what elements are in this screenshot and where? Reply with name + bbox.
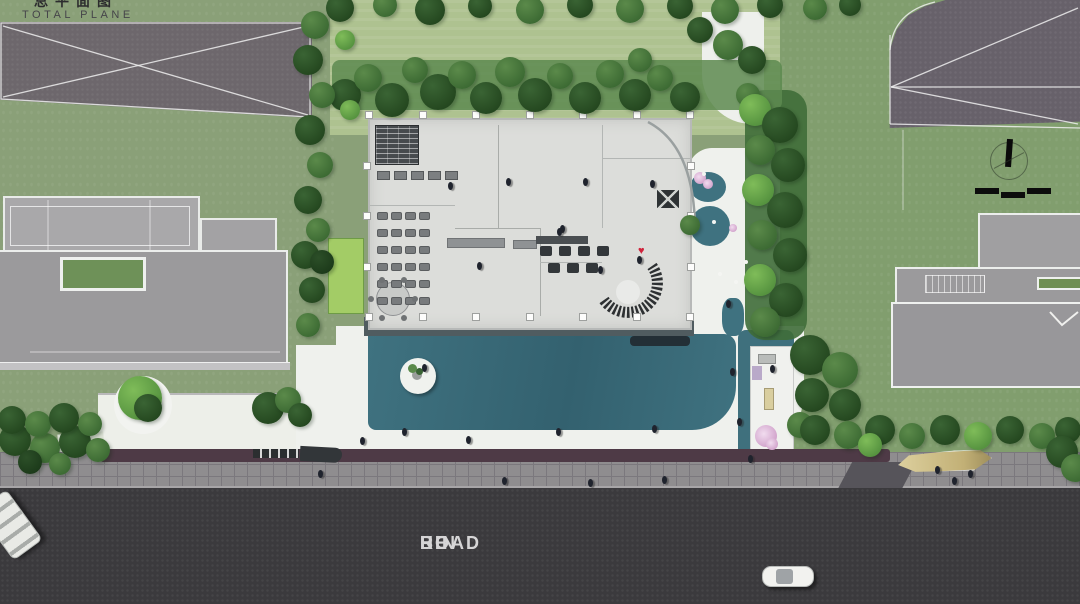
person-figure [318, 470, 323, 478]
person-figure [583, 178, 588, 186]
person-figure [737, 418, 742, 426]
plan-title-en: TOTAL PLANE [22, 9, 134, 21]
person-figure [598, 266, 603, 274]
scale-bar-seg1 [975, 188, 999, 194]
scale-bar-seg3 [1027, 188, 1051, 194]
scale-bar [975, 187, 1053, 201]
person-figure [588, 479, 593, 487]
person-figure [650, 180, 655, 188]
person-figure [448, 182, 453, 190]
person-figure [466, 436, 471, 444]
person-figure [360, 437, 365, 445]
person-figure [557, 228, 562, 236]
site-plan: ♥ [0, 0, 1080, 604]
person-figure [935, 466, 940, 474]
scale-bar-seg2 [1001, 192, 1025, 198]
person-figure [730, 368, 735, 376]
person-figure [770, 365, 775, 373]
person-figure [726, 300, 731, 308]
plan-title-cn-partial: 总平面图 [34, 0, 194, 9]
person-figure [952, 477, 957, 485]
person-figure [502, 477, 507, 485]
person-figure [506, 178, 511, 186]
person-figure [422, 364, 427, 372]
person-figure [477, 262, 482, 270]
person-figure [968, 470, 973, 478]
person-figure [652, 425, 657, 433]
person-figure [637, 256, 642, 264]
person-figure [556, 428, 561, 436]
person-figure [402, 428, 407, 436]
person-figure [662, 476, 667, 484]
people-layer [0, 0, 1080, 604]
person-figure [748, 455, 753, 463]
